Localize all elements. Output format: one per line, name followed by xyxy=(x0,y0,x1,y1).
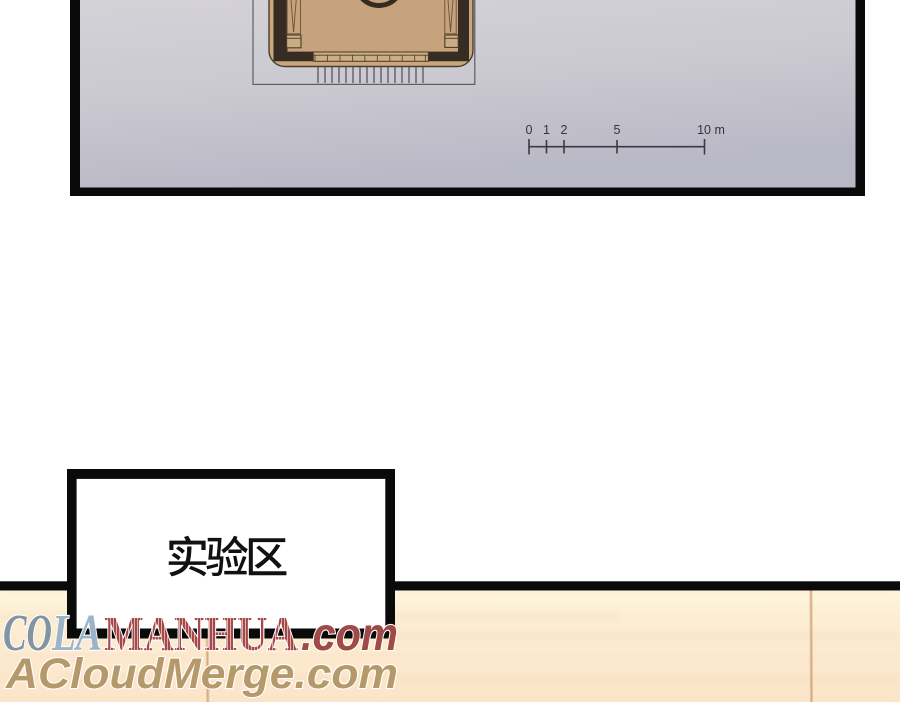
svg-text:10 m: 10 m xyxy=(697,123,725,137)
svg-text:2: 2 xyxy=(561,123,568,137)
svg-text:5: 5 xyxy=(614,123,621,137)
svg-text:ACloudMerge.com: ACloudMerge.com xyxy=(5,650,398,698)
svg-text:1: 1 xyxy=(543,123,550,137)
svg-text:0: 0 xyxy=(526,123,533,137)
